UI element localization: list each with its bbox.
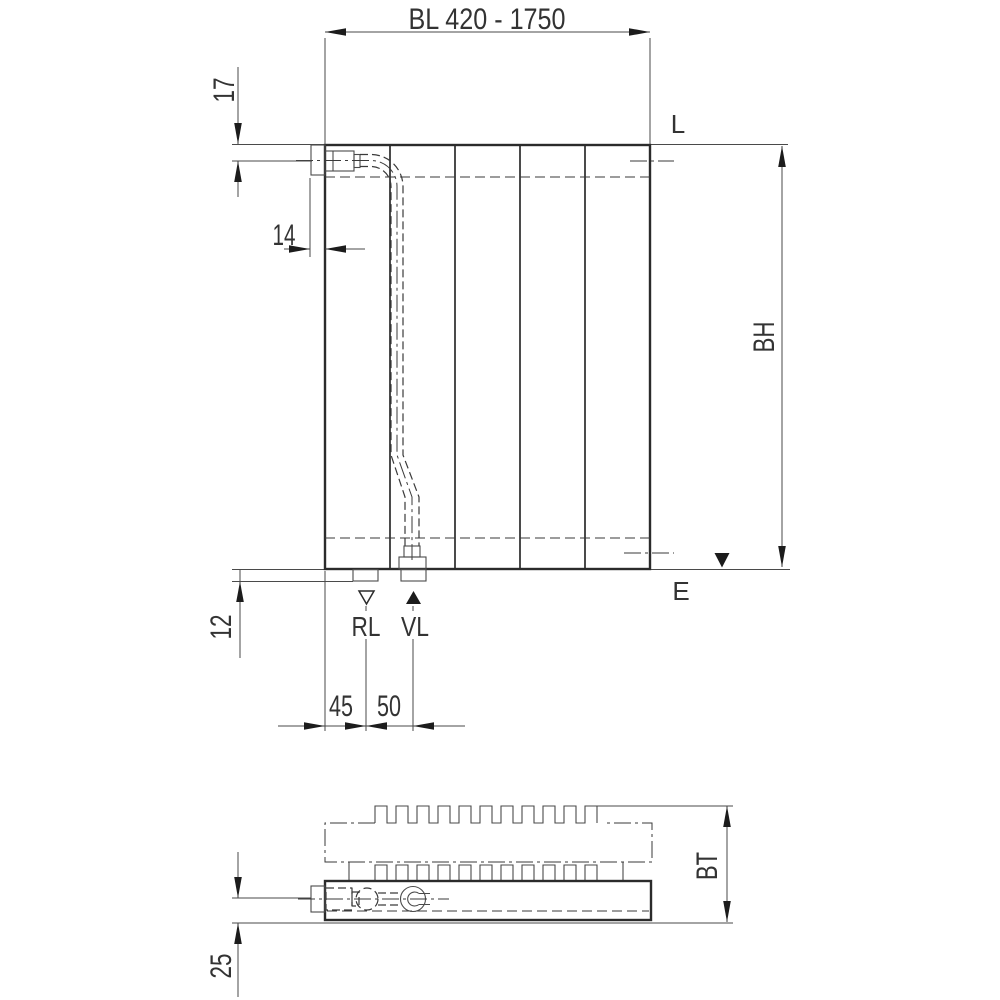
return-stub xyxy=(353,570,378,582)
dim25-up-arrow-icon xyxy=(234,923,242,944)
rear-panel-hidden-outline xyxy=(325,823,652,862)
dim14-left-arrow-icon xyxy=(325,245,346,253)
dim45-left-arrow-icon xyxy=(304,722,325,730)
supply-flow-triangle-icon xyxy=(406,591,421,604)
bl-right-arrow-icon xyxy=(629,28,650,36)
dim-14-label: 14 xyxy=(273,219,296,252)
front-view xyxy=(232,145,790,605)
dim-12-label: 12 xyxy=(205,615,238,640)
pipe-centerline xyxy=(296,161,412,561)
arrowheads xyxy=(234,28,786,944)
level-marker-icon xyxy=(715,553,730,568)
depth-dimension-label: BT xyxy=(691,852,724,880)
bl-left-arrow-icon xyxy=(325,28,346,36)
return-flow-triangle-icon xyxy=(359,591,374,604)
dim12-up-arrow-icon xyxy=(236,582,244,603)
return-flow-label: RL xyxy=(352,611,381,642)
flow-symbols xyxy=(359,591,421,604)
plan-connection-detail xyxy=(298,886,449,912)
bottom-connection-stubs xyxy=(353,570,426,582)
pipe-inner-edge xyxy=(360,167,405,547)
dim-45-label: 45 xyxy=(329,690,353,723)
bh-down-arrow-icon xyxy=(778,546,786,567)
dim17-up-arrow-icon xyxy=(234,161,242,182)
bh-up-arrow-icon xyxy=(778,146,786,167)
height-dimension-label: BH xyxy=(748,322,781,353)
vent-connection-label: L xyxy=(671,109,685,139)
radiator-dimension-drawing-page: BL 420 - 1750 17 14 L BH E 12 RL VL 45 5… xyxy=(0,0,1000,1000)
plan-view xyxy=(298,806,652,920)
length-dimension-label: BL 420 - 1750 xyxy=(409,3,566,36)
dim-50-label: 50 xyxy=(377,690,401,723)
bt-down-arrow-icon xyxy=(723,901,731,922)
upper-fin-row xyxy=(375,806,597,823)
supply-stub xyxy=(401,570,426,582)
internal-pipe xyxy=(296,155,426,570)
dim-17-label: 17 xyxy=(208,78,241,103)
technical-drawing-canvas: BL 420 - 1750 17 14 L BH E 12 RL VL 45 5… xyxy=(0,0,1000,1000)
front-panel xyxy=(325,881,651,920)
lower-fin-row xyxy=(349,862,623,881)
dim45-right-arrow-icon xyxy=(345,722,366,730)
dim17-down-arrow-icon xyxy=(234,123,242,144)
bt-up-arrow-icon xyxy=(723,806,731,827)
drain-connection-label: E xyxy=(672,576,689,606)
radiator-front-body xyxy=(325,145,674,569)
dim-25-label: 25 xyxy=(205,954,238,979)
supply-flow-label: VL xyxy=(401,611,429,642)
text-labels: BL 420 - 1750 17 14 L BH E 12 RL VL 45 5… xyxy=(205,3,781,979)
dim50-left-arrow-icon xyxy=(366,722,387,730)
dim25-down-arrow-icon xyxy=(234,877,242,898)
dim50-right-arrow-icon xyxy=(413,722,434,730)
